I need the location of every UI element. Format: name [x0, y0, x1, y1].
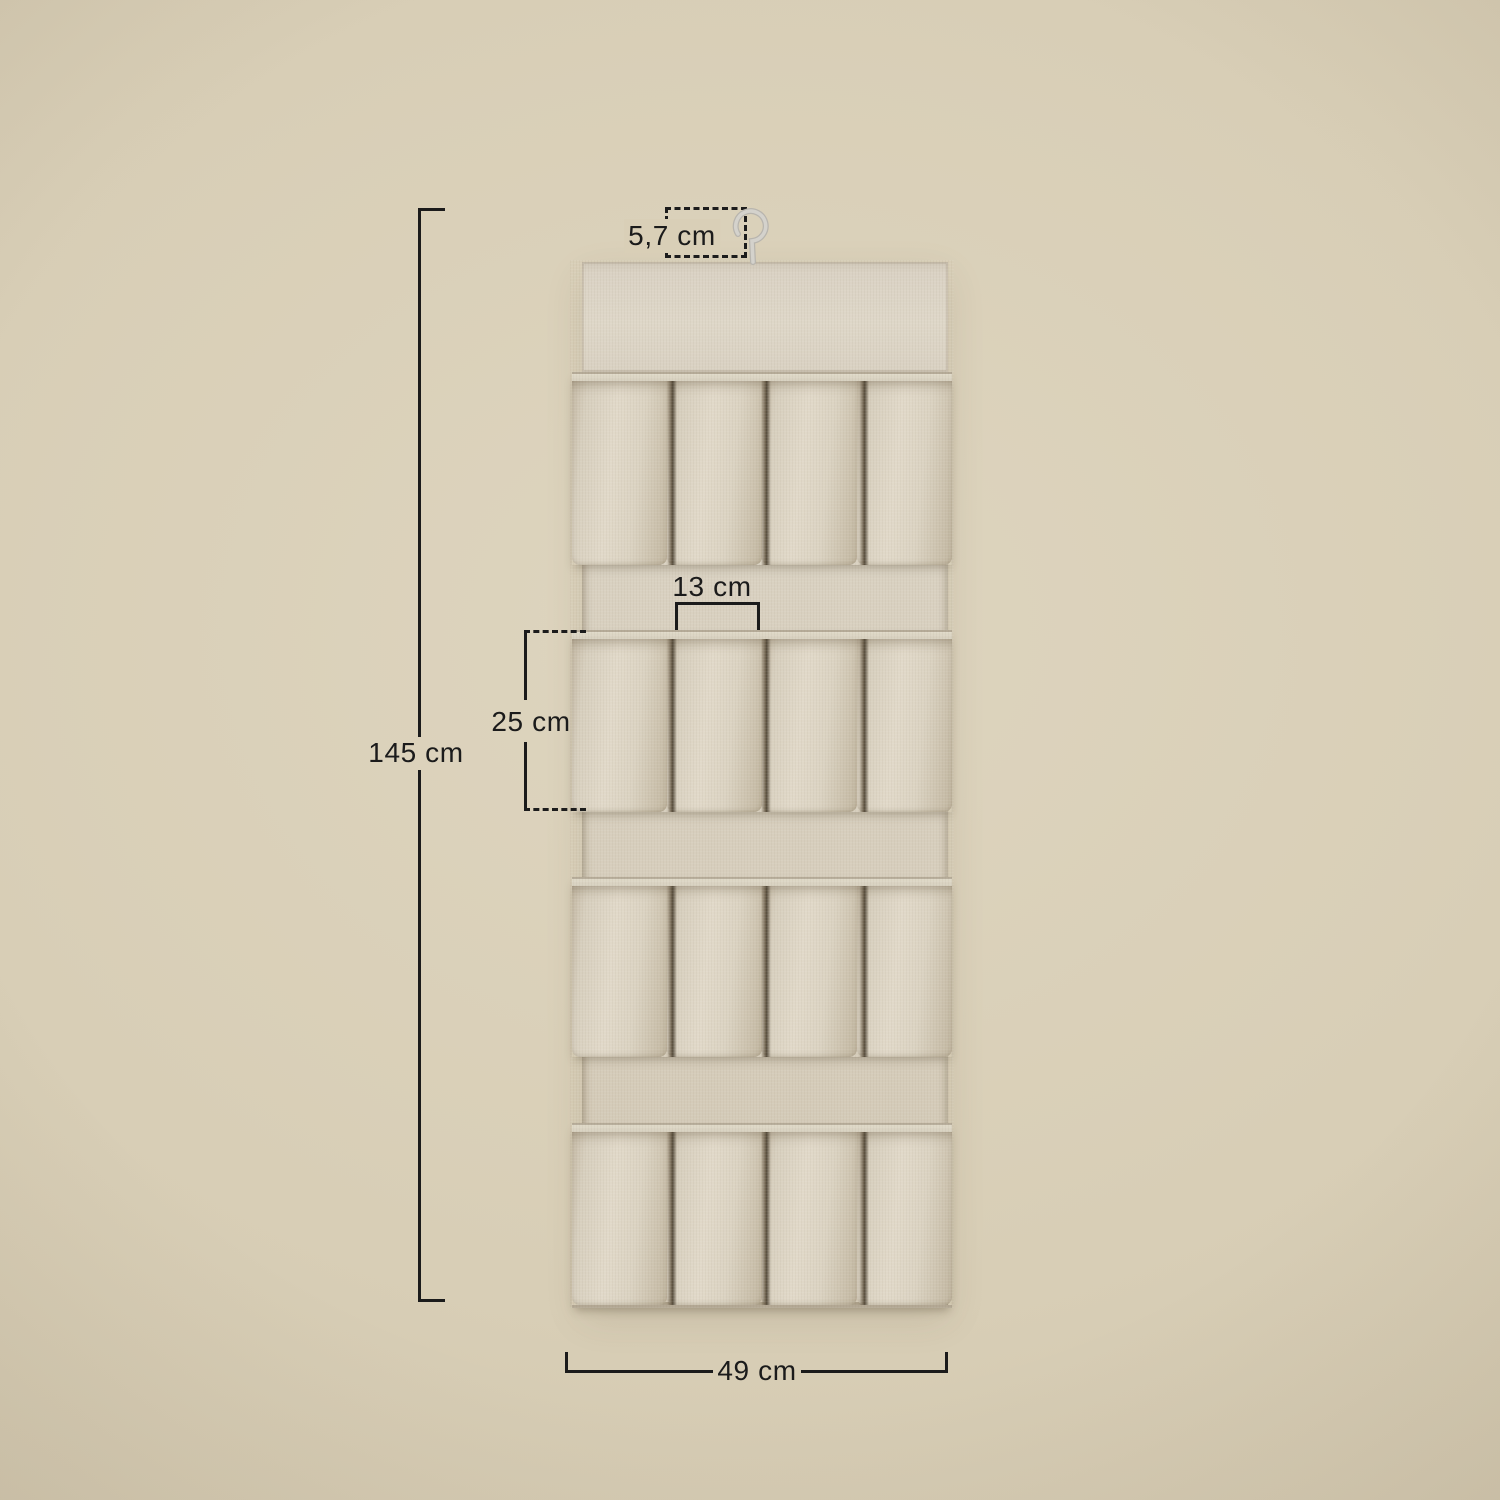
pocket-height-line-lower: [524, 742, 527, 811]
width-bracket-line-right: [801, 1370, 948, 1373]
scene-background: 145 cm 5,7 cm 13 cm 25 cm 49 cm: [0, 0, 1500, 1500]
height-bracket-top-tick: [418, 208, 445, 211]
pocket: [572, 639, 667, 812]
pocket: [667, 1132, 762, 1305]
width-bracket-line-left: [565, 1370, 713, 1373]
pocket: [667, 639, 762, 812]
pocket: [762, 639, 857, 812]
pocket-crease: [667, 381, 677, 565]
organizer-header-band: [582, 262, 948, 372]
pocket: [572, 886, 667, 1057]
height-bracket-line-lower: [418, 770, 421, 1302]
width-bracket-right-tick: [945, 1352, 948, 1373]
pocket-crease: [859, 639, 869, 812]
pocket: [762, 1132, 857, 1305]
pocket-crease: [667, 886, 677, 1057]
pocket: [857, 639, 952, 812]
pocket-row-2: [572, 630, 952, 812]
total-width-label: 49 cm: [717, 1355, 796, 1387]
pocket-crease: [761, 886, 771, 1057]
pocket-row-binding: [572, 1123, 952, 1132]
pocket-crease: [667, 1132, 677, 1305]
pocket-crease: [859, 886, 869, 1057]
pocket: [762, 381, 857, 565]
hanging-hook: [722, 196, 782, 268]
pocket-row-4: [572, 1123, 952, 1308]
pocket-height-label: 25 cm: [491, 706, 570, 738]
pocket: [762, 886, 857, 1057]
pocket-row-binding: [572, 630, 952, 639]
pocket-row-1: [572, 372, 952, 565]
pocket-crease: [859, 1132, 869, 1305]
pocket: [667, 886, 762, 1057]
pocket-width-label: 13 cm: [672, 571, 751, 603]
total-height-label: 145 cm: [368, 737, 463, 769]
pocket: [857, 1132, 952, 1305]
pocket-height-dash-top: [524, 630, 586, 633]
pocket: [857, 886, 952, 1057]
pocket-crease: [761, 1132, 771, 1305]
pocket-row-binding: [572, 372, 952, 381]
height-bracket-bottom-tick: [418, 1299, 445, 1302]
pocket-height-line-upper: [524, 630, 527, 700]
pocket: [857, 381, 952, 565]
height-bracket-line-upper: [418, 208, 421, 737]
pocket: [572, 381, 667, 565]
pocket: [667, 381, 762, 565]
pocket-width-bracket: [675, 602, 760, 630]
pocket-crease: [761, 381, 771, 565]
pocket-row-binding: [572, 877, 952, 886]
pocket-crease: [761, 639, 771, 812]
pocket-crease: [667, 639, 677, 812]
pocket-height-dash-bottom: [524, 808, 586, 811]
pocket-row-3: [572, 877, 952, 1057]
pocket: [572, 1132, 667, 1305]
hook-width-label: 5,7 cm: [624, 219, 720, 253]
pocket-crease: [859, 381, 869, 565]
